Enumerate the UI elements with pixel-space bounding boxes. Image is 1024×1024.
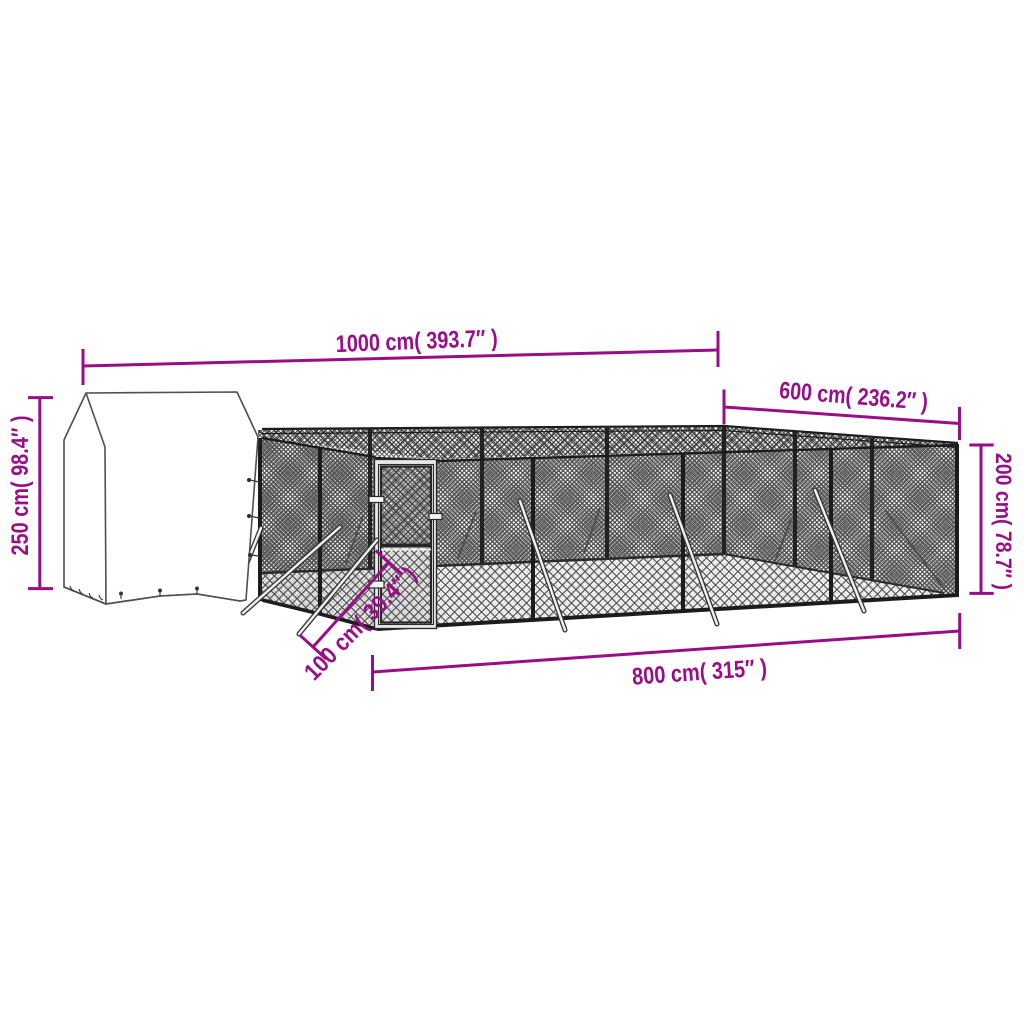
svg-text:250 cm( 98.4″ ): 250 cm( 98.4″ ) bbox=[7, 416, 34, 556]
svg-text:200 cm( 78.7″ ): 200 cm( 78.7″ ) bbox=[991, 453, 1016, 590]
